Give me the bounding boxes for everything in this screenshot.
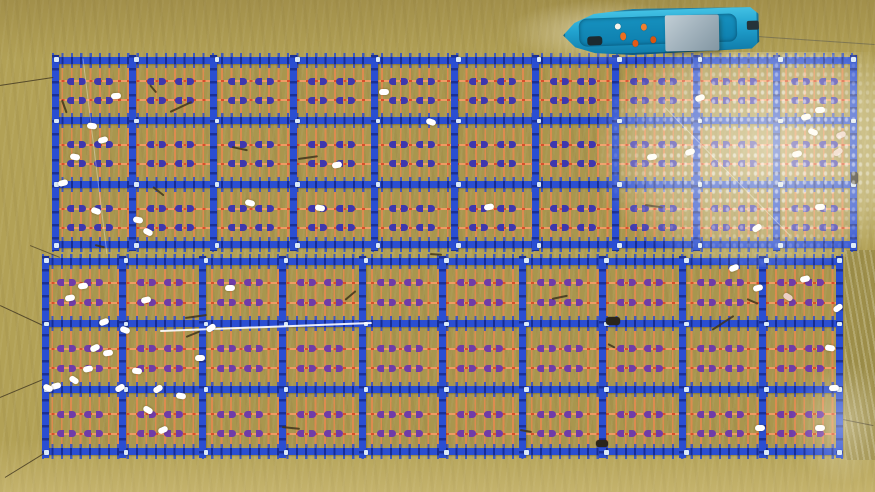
boat-motor [747, 21, 759, 30]
crew-member [620, 32, 626, 40]
boat-bow-gear [587, 36, 602, 46]
boat-canopy [665, 14, 720, 51]
boat-layer [0, 0, 875, 492]
workboat [562, 5, 759, 58]
aerial-photo-oyster-raft-farm [0, 0, 875, 492]
